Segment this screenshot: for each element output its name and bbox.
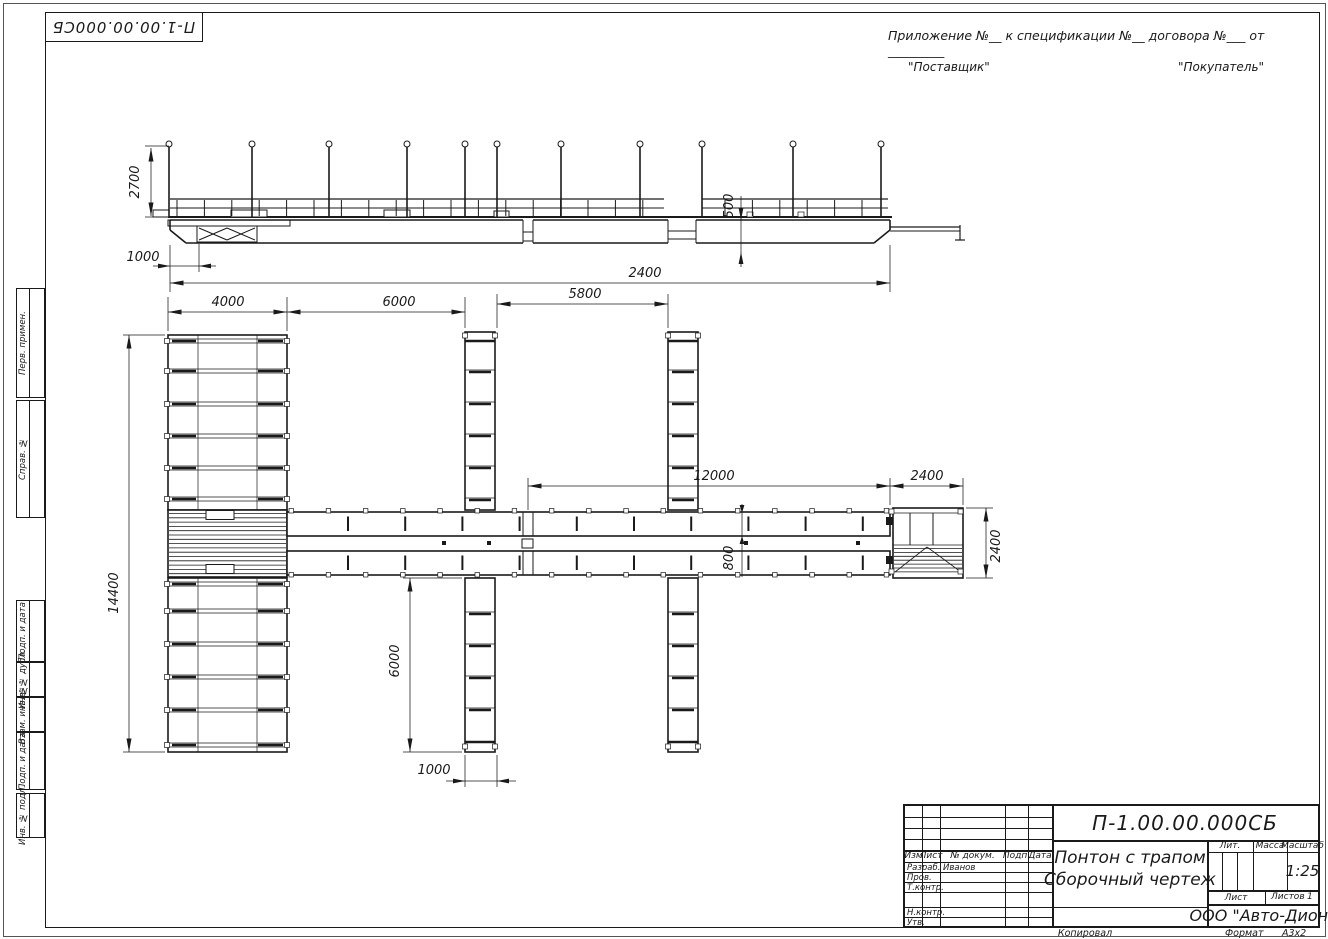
dim-finger-width: 1000	[417, 763, 450, 778]
dim-pier-length: 14400	[107, 572, 122, 613]
tb-name-line2: Сборочный чертеж	[1055, 868, 1205, 892]
format-value: А3х2	[1282, 928, 1306, 939]
dim-total-length: 2400	[628, 266, 661, 281]
dim-freeboard: 500	[722, 194, 737, 219]
dim-post-height: 2700	[128, 165, 143, 198]
shore-gangway	[890, 225, 965, 240]
tb-doc-number: П-1.00.00.000СБ	[1052, 806, 1318, 840]
dim-walkway: 12000	[693, 469, 734, 484]
dim-gap2: 5800	[568, 287, 601, 302]
copied-label: Копировал	[1040, 928, 1130, 939]
row-razrab-value: Иванов	[943, 863, 975, 873]
dim-platform-width: 2400	[989, 529, 1004, 562]
col-data: Дата	[1028, 850, 1052, 862]
row-utv: Утв.	[907, 918, 925, 928]
plan-view	[165, 141, 964, 752]
col-list: Лист	[922, 850, 940, 862]
tb-name-line1: Понтон с трапом	[1055, 846, 1205, 870]
row-razrab: Разраб.	[907, 863, 940, 873]
dim-finger-length: 6000	[388, 644, 403, 677]
dim-platform-length: 2400	[910, 469, 943, 484]
scissor-lift	[197, 226, 257, 242]
tb-scale-label: Масштаб	[1287, 840, 1318, 852]
dim-gap1: 6000	[382, 295, 415, 310]
drawing-sheet: П-1.00.00.000СБ Приложение №__ к специфи…	[0, 0, 1328, 939]
tb-lit-label: Лит.	[1207, 840, 1253, 852]
side-view	[153, 199, 965, 243]
dim-walkway-width: 800	[722, 546, 737, 571]
format-label: Формат	[1225, 928, 1264, 939]
dim-ramp-offset: 1000	[126, 250, 159, 265]
tb-company: ООО "Авто-Дион"	[1207, 904, 1318, 926]
row-tkontr: Т.контр.	[907, 883, 944, 893]
tb-sheet-label: Лист	[1207, 891, 1265, 904]
col-docnum: № докум.	[940, 850, 1005, 862]
row-nkontr: Н.контр.	[907, 908, 945, 918]
tb-scale-value: 1:25	[1287, 858, 1318, 884]
pontoon-drawing: 2700 1000 500 2400 4000 6000 5800 12000 …	[0, 0, 1328, 939]
tb-sheets-label: Листов	[1271, 892, 1305, 902]
dim-pier-width: 4000	[211, 295, 244, 310]
col-podp: Подп.	[1005, 850, 1028, 862]
tb-sheets-value: 1	[1307, 892, 1313, 902]
row-prov: Пров.	[907, 873, 932, 883]
title-block: Изм Лист № докум. Подп. Дата Разраб. Ива…	[903, 804, 1320, 928]
